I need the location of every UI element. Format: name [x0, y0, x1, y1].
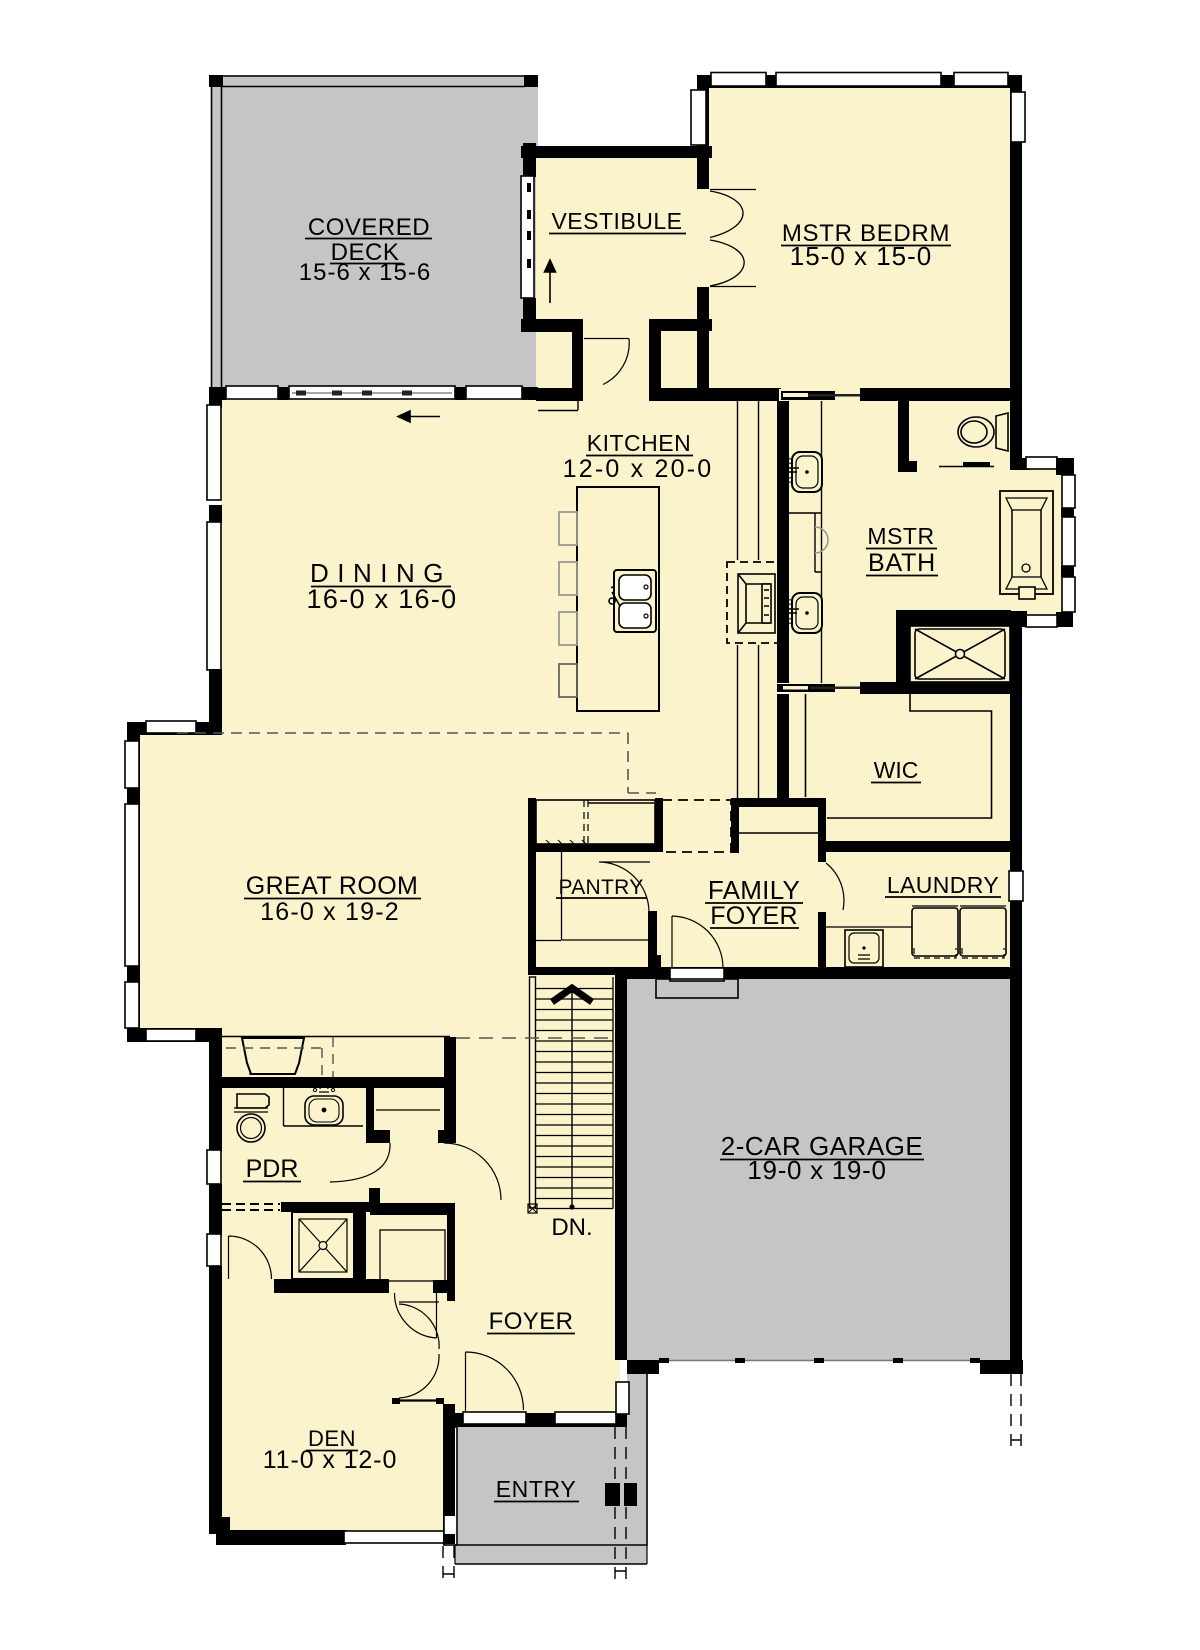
svg-text:16-0 x 16-0: 16-0 x 16-0 [307, 584, 458, 614]
svg-text:GREAT ROOM: GREAT ROOM [246, 872, 419, 900]
svg-text:19-0 x 19-0: 19-0 x 19-0 [747, 1155, 886, 1185]
svg-text:15-0 x 15-0: 15-0 x 15-0 [790, 241, 933, 271]
svg-text:ENTRY: ENTRY [496, 1476, 577, 1502]
svg-text:FOYER: FOYER [489, 1308, 574, 1335]
svg-text:COVERED: COVERED [308, 214, 430, 241]
svg-text:15-6 x 15-6: 15-6 x 15-6 [299, 259, 431, 286]
svg-text:WIC: WIC [874, 757, 919, 783]
svg-text:FAMILY: FAMILY [708, 875, 800, 905]
svg-text:BATH: BATH [868, 549, 936, 577]
svg-text:16-0 x 19-2: 16-0 x 19-2 [260, 898, 400, 926]
svg-text:VESTIBULE: VESTIBULE [551, 208, 682, 234]
svg-text:KITCHEN: KITCHEN [587, 430, 691, 456]
svg-text:MSTR: MSTR [867, 523, 934, 549]
svg-text:FOYER: FOYER [710, 902, 798, 930]
svg-text:12-0 x 20-0: 12-0 x 20-0 [563, 455, 714, 483]
svg-text:PDR: PDR [246, 1155, 299, 1183]
svg-text:LAUNDRY: LAUNDRY [887, 872, 999, 898]
svg-text:PANTRY: PANTRY [558, 876, 643, 899]
svg-text:11-0 x 12-0: 11-0 x 12-0 [263, 1446, 398, 1474]
svg-text:DN.: DN. [551, 1214, 592, 1241]
